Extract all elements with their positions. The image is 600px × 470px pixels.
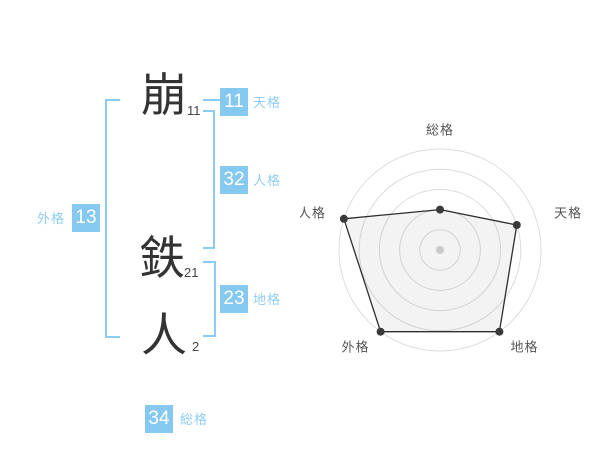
jinkaku-bracket: [203, 110, 215, 249]
fortune-radar-chart: 総格天格地格外格人格: [300, 105, 600, 365]
radar-axis-label: 天格: [554, 205, 582, 220]
gaikaku-value-badge: 13: [72, 204, 100, 232]
stroke-count-2: 21: [184, 266, 198, 279]
radar-axis-label: 総格: [426, 123, 454, 138]
kanji-char-2: 鉄: [139, 235, 185, 281]
gaikaku-bracket: [105, 99, 120, 338]
tenkaku-label: 天格: [253, 96, 281, 109]
chikaku-value-badge: 23: [220, 285, 248, 313]
stroke-count-1: 11: [187, 104, 201, 117]
kanji-char-1: 崩: [141, 72, 187, 118]
radar-vertex-dot: [436, 206, 444, 214]
gaikaku-label: 外格: [37, 212, 65, 225]
jinkaku-value-badge: 32: [220, 166, 248, 194]
radar-vertex-dot: [377, 328, 385, 336]
chikaku-bracket: [203, 261, 216, 337]
radar-svg: 総格天格地格外格人格: [300, 105, 600, 365]
soukaku-value-badge: 34: [145, 405, 173, 433]
tenkaku-tick: [203, 99, 220, 101]
radar-axis-label: 外格: [341, 340, 369, 355]
stroke-count-3: 2: [192, 340, 199, 353]
tenkaku-value-badge: 11: [220, 88, 248, 116]
name-fortune-panel: 崩 11 鉄 21 人 2 11 天格 32 人格 23 地格 外格 13 34…: [0, 0, 600, 470]
radar-data-polygon: [344, 210, 517, 332]
soukaku-label: 総格: [180, 413, 208, 426]
radar-vertex-dot: [513, 221, 521, 229]
radar-center-dot: [436, 246, 444, 254]
radar-vertex-dot: [495, 328, 503, 336]
chikaku-label: 地格: [253, 293, 281, 306]
radar-vertex-dot: [340, 215, 348, 223]
radar-axis-label: 地格: [511, 340, 539, 355]
radar-axis-label: 人格: [300, 205, 326, 220]
jinkaku-label: 人格: [253, 174, 281, 187]
kanji-char-3: 人: [141, 312, 187, 358]
